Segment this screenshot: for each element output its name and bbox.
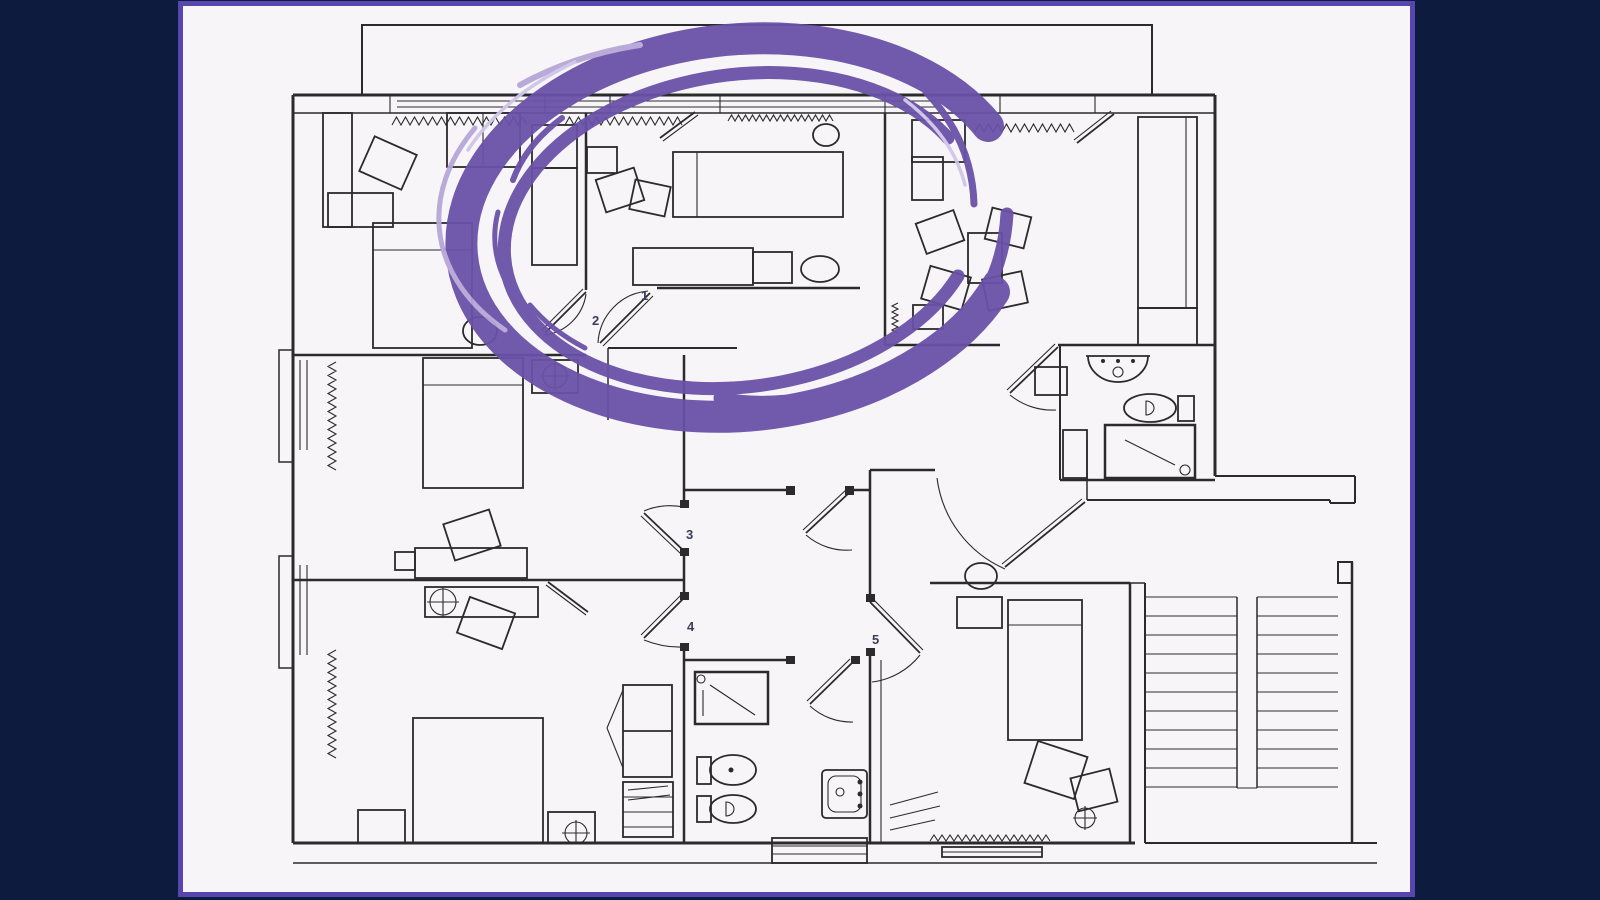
- floorplan-panel: [183, 6, 1410, 892]
- room-label-1: 1: [641, 288, 648, 303]
- room-label-4: 4: [687, 619, 695, 634]
- room-label-3: 3: [686, 527, 693, 542]
- room-label-5: 5: [872, 632, 879, 647]
- room-label-2: 2: [592, 313, 599, 328]
- slide-canvas: 1 2 3 4 5: [0, 0, 1600, 900]
